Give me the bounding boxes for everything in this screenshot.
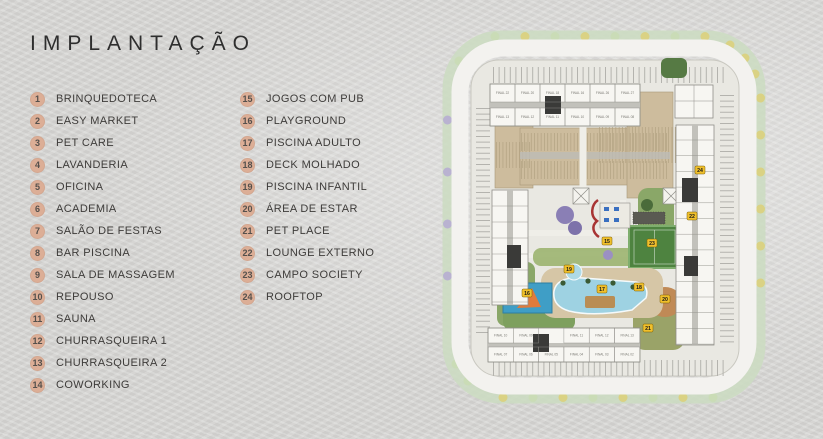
tree-icon	[709, 393, 718, 402]
legend-item-21: 21PET PLACE	[240, 220, 374, 242]
legend-item-16: 16PLAYGROUND	[240, 110, 374, 132]
legend-item-label: CHURRASQUEIRA 1	[56, 335, 167, 347]
legend-item-13: 13CHURRASQUEIRA 2	[30, 352, 175, 374]
legend-item-number: 24	[240, 290, 255, 305]
plan-marker-number: 16	[524, 291, 530, 297]
tree-icon	[756, 279, 765, 288]
legend-item-label: PET PLACE	[266, 225, 330, 237]
legend-item-number: 16	[240, 114, 255, 129]
site-plan: FINAL 22FINAL 20FINAL 18FINAL 16FINAL 26…	[433, 0, 823, 434]
unit-label: FINAL 08	[621, 115, 635, 119]
legend-item-number: 18	[240, 158, 255, 173]
plan-marker-number: 23	[649, 241, 655, 247]
core-right-2	[684, 256, 698, 276]
unit-label: FINAL 12	[521, 115, 535, 119]
plan-marker-number: 18	[636, 285, 642, 291]
plan-marker-number: 21	[645, 326, 651, 332]
unit-label: FINAL 07	[494, 353, 508, 357]
legend-item-label: EASY MARKET	[56, 115, 138, 127]
legend-item-5: 5OFICINA	[30, 176, 175, 198]
legend-item-15: 15JOGOS COM PUB	[240, 88, 374, 110]
legend-item-number: 6	[30, 202, 45, 217]
legend-item-label: DECK MOLHADO	[266, 159, 360, 171]
legend-item-24: 24ROOFTOP	[240, 286, 374, 308]
legend-item-label: LAVANDERIA	[56, 159, 128, 171]
legend-item-label: COWORKING	[56, 379, 130, 391]
legend-item-label: SALÃO DE FESTAS	[56, 225, 162, 237]
legend-item-2: 2EASY MARKET	[30, 110, 175, 132]
legend-item-18: 18DECK MOLHADO	[240, 154, 374, 176]
legend-item-number: 3	[30, 136, 45, 151]
legend-item-7: 7SALÃO DE FESTAS	[30, 220, 175, 242]
tree-icon	[756, 94, 765, 103]
legend-item-label: ÁREA DE ESTAR	[266, 203, 358, 215]
unit-label: FINAL 05	[545, 353, 559, 357]
legend-item-number: 21	[240, 224, 255, 239]
legend-item-number: 14	[30, 378, 45, 393]
legend-item-3: 3PET CARE	[30, 132, 175, 154]
tree-icon	[443, 272, 452, 281]
legend-item-number: 19	[240, 180, 255, 195]
unit-label: FINAL 20	[521, 91, 535, 95]
legend-item-number: 13	[30, 356, 45, 371]
legend-item-14: 14COWORKING	[30, 374, 175, 396]
legend-item-number: 4	[30, 158, 45, 173]
legend-item-label: SALA DE MASSAGEM	[56, 269, 175, 281]
tree-icon	[756, 168, 765, 177]
unit-label: FINAL 18	[546, 91, 560, 95]
legend-item-label: LOUNGE EXTERNO	[266, 247, 374, 259]
legend-item-6: 6ACADEMIA	[30, 198, 175, 220]
tree-icon	[756, 131, 765, 140]
legend-item-8: 8BAR PISCINA	[30, 242, 175, 264]
legend-item-label: JOGOS COM PUB	[266, 93, 364, 105]
legend-item-1: 1BRINQUEDOTECA	[30, 88, 175, 110]
core-right-1	[682, 178, 698, 202]
legend-item-22: 22LOUNGE EXTERNO	[240, 242, 374, 264]
legend-item-number: 17	[240, 136, 255, 151]
unit-label: FINAL 10	[494, 334, 508, 338]
legend-item-12: 12CHURRASQUEIRA 1	[30, 330, 175, 352]
legend-item-number: 10	[30, 290, 45, 305]
unit-label: FINAL 03	[595, 353, 609, 357]
unit-label: FINAL 10	[571, 115, 585, 119]
core-top	[545, 96, 561, 114]
legend-item-number: 23	[240, 268, 255, 283]
unit-label: FINAL 27	[621, 91, 635, 95]
legend-item-20: 20ÁREA DE ESTAR	[240, 198, 374, 220]
plan-marker-number: 15	[604, 239, 610, 245]
legend-item-number: 20	[240, 202, 255, 217]
unit-label: FINAL 11	[546, 115, 559, 119]
unit-label: FINAL 16	[571, 91, 585, 95]
legend-column-2: 15JOGOS COM PUB16PLAYGROUND17PISCINA ADU…	[240, 88, 374, 308]
tree-icon	[756, 242, 765, 251]
tree-icon	[443, 116, 452, 125]
legend-item-label: BRINQUEDOTECA	[56, 93, 157, 105]
unit-label: FINAL 22	[496, 91, 510, 95]
legend-item-number: 11	[30, 312, 45, 327]
legend-item-label: PLAYGROUND	[266, 115, 346, 127]
legend-item-number: 5	[30, 180, 45, 195]
site-plan-svg: FINAL 22FINAL 20FINAL 18FINAL 16FINAL 26…	[433, 0, 823, 434]
unit-label: FINAL 02	[620, 353, 634, 357]
wet-deck	[585, 296, 615, 308]
legend-item-9: 9SALA DE MASSAGEM	[30, 264, 175, 286]
unit-label: FINAL 04	[570, 353, 584, 357]
unit-label: FINAL 12	[595, 334, 609, 338]
legend-item-number: 1	[30, 92, 45, 107]
legend-item-23: 23CAMPO SOCIETY	[240, 264, 374, 286]
tree-icon	[491, 32, 500, 41]
legend-item-label: ACADEMIA	[56, 203, 117, 215]
legend-column-1: 1BRINQUEDOTECA2EASY MARKET3PET CARE4LAVA…	[30, 88, 175, 396]
tree-icon	[756, 205, 765, 214]
legend-item-number: 12	[30, 334, 45, 349]
legend-item-label: BAR PISCINA	[56, 247, 130, 259]
legend-item-17: 17PISCINA ADULTO	[240, 132, 374, 154]
plan-marker-number: 19	[566, 267, 572, 273]
plan-marker-number: 17	[599, 287, 605, 293]
legend-item-4: 4LAVANDERIA	[30, 154, 175, 176]
legend-item-label: PET CARE	[56, 137, 114, 149]
tree-icon	[443, 168, 452, 177]
unit-label: FINAL 09	[596, 115, 610, 119]
unit-label: FINAL 09	[519, 334, 533, 338]
legend-item-10: 10REPOUSO	[30, 286, 175, 308]
legend-item-label: OFICINA	[56, 181, 103, 193]
adult-pool	[554, 278, 647, 314]
legend-item-label: ROOFTOP	[266, 291, 323, 303]
legend-item-19: 19PISCINA INFANTIL	[240, 176, 374, 198]
unit-label: FINAL 06	[519, 353, 533, 357]
legend-item-number: 7	[30, 224, 45, 239]
tree-icon	[443, 220, 452, 229]
legend-item-label: SAUNA	[56, 313, 96, 325]
legend-item-number: 22	[240, 246, 255, 261]
legend-item-number: 15	[240, 92, 255, 107]
unit-label: FINAL 26	[596, 91, 610, 95]
unit-label: FINAL 11	[570, 334, 583, 338]
legend-item-number: 8	[30, 246, 45, 261]
core-left	[507, 245, 521, 268]
legend-item-label: PISCINA ADULTO	[266, 137, 361, 149]
legend-item-label: PISCINA INFANTIL	[266, 181, 367, 193]
legend-item-number: 9	[30, 268, 45, 283]
plan-marker-number: 22	[689, 214, 695, 220]
legend-item-11: 11SAUNA	[30, 308, 175, 330]
unit-label: FINAL 13	[496, 115, 510, 119]
plan-marker-number: 24	[697, 168, 703, 174]
page-title: IMPLANTAÇÃO	[30, 32, 256, 56]
plan-marker-number: 20	[662, 297, 668, 303]
legend-item-label: CHURRASQUEIRA 2	[56, 357, 167, 369]
legend-item-number: 2	[30, 114, 45, 129]
unit-label: FINAL 13	[620, 334, 634, 338]
legend-item-label: REPOUSO	[56, 291, 114, 303]
legend-item-label: CAMPO SOCIETY	[266, 269, 363, 281]
